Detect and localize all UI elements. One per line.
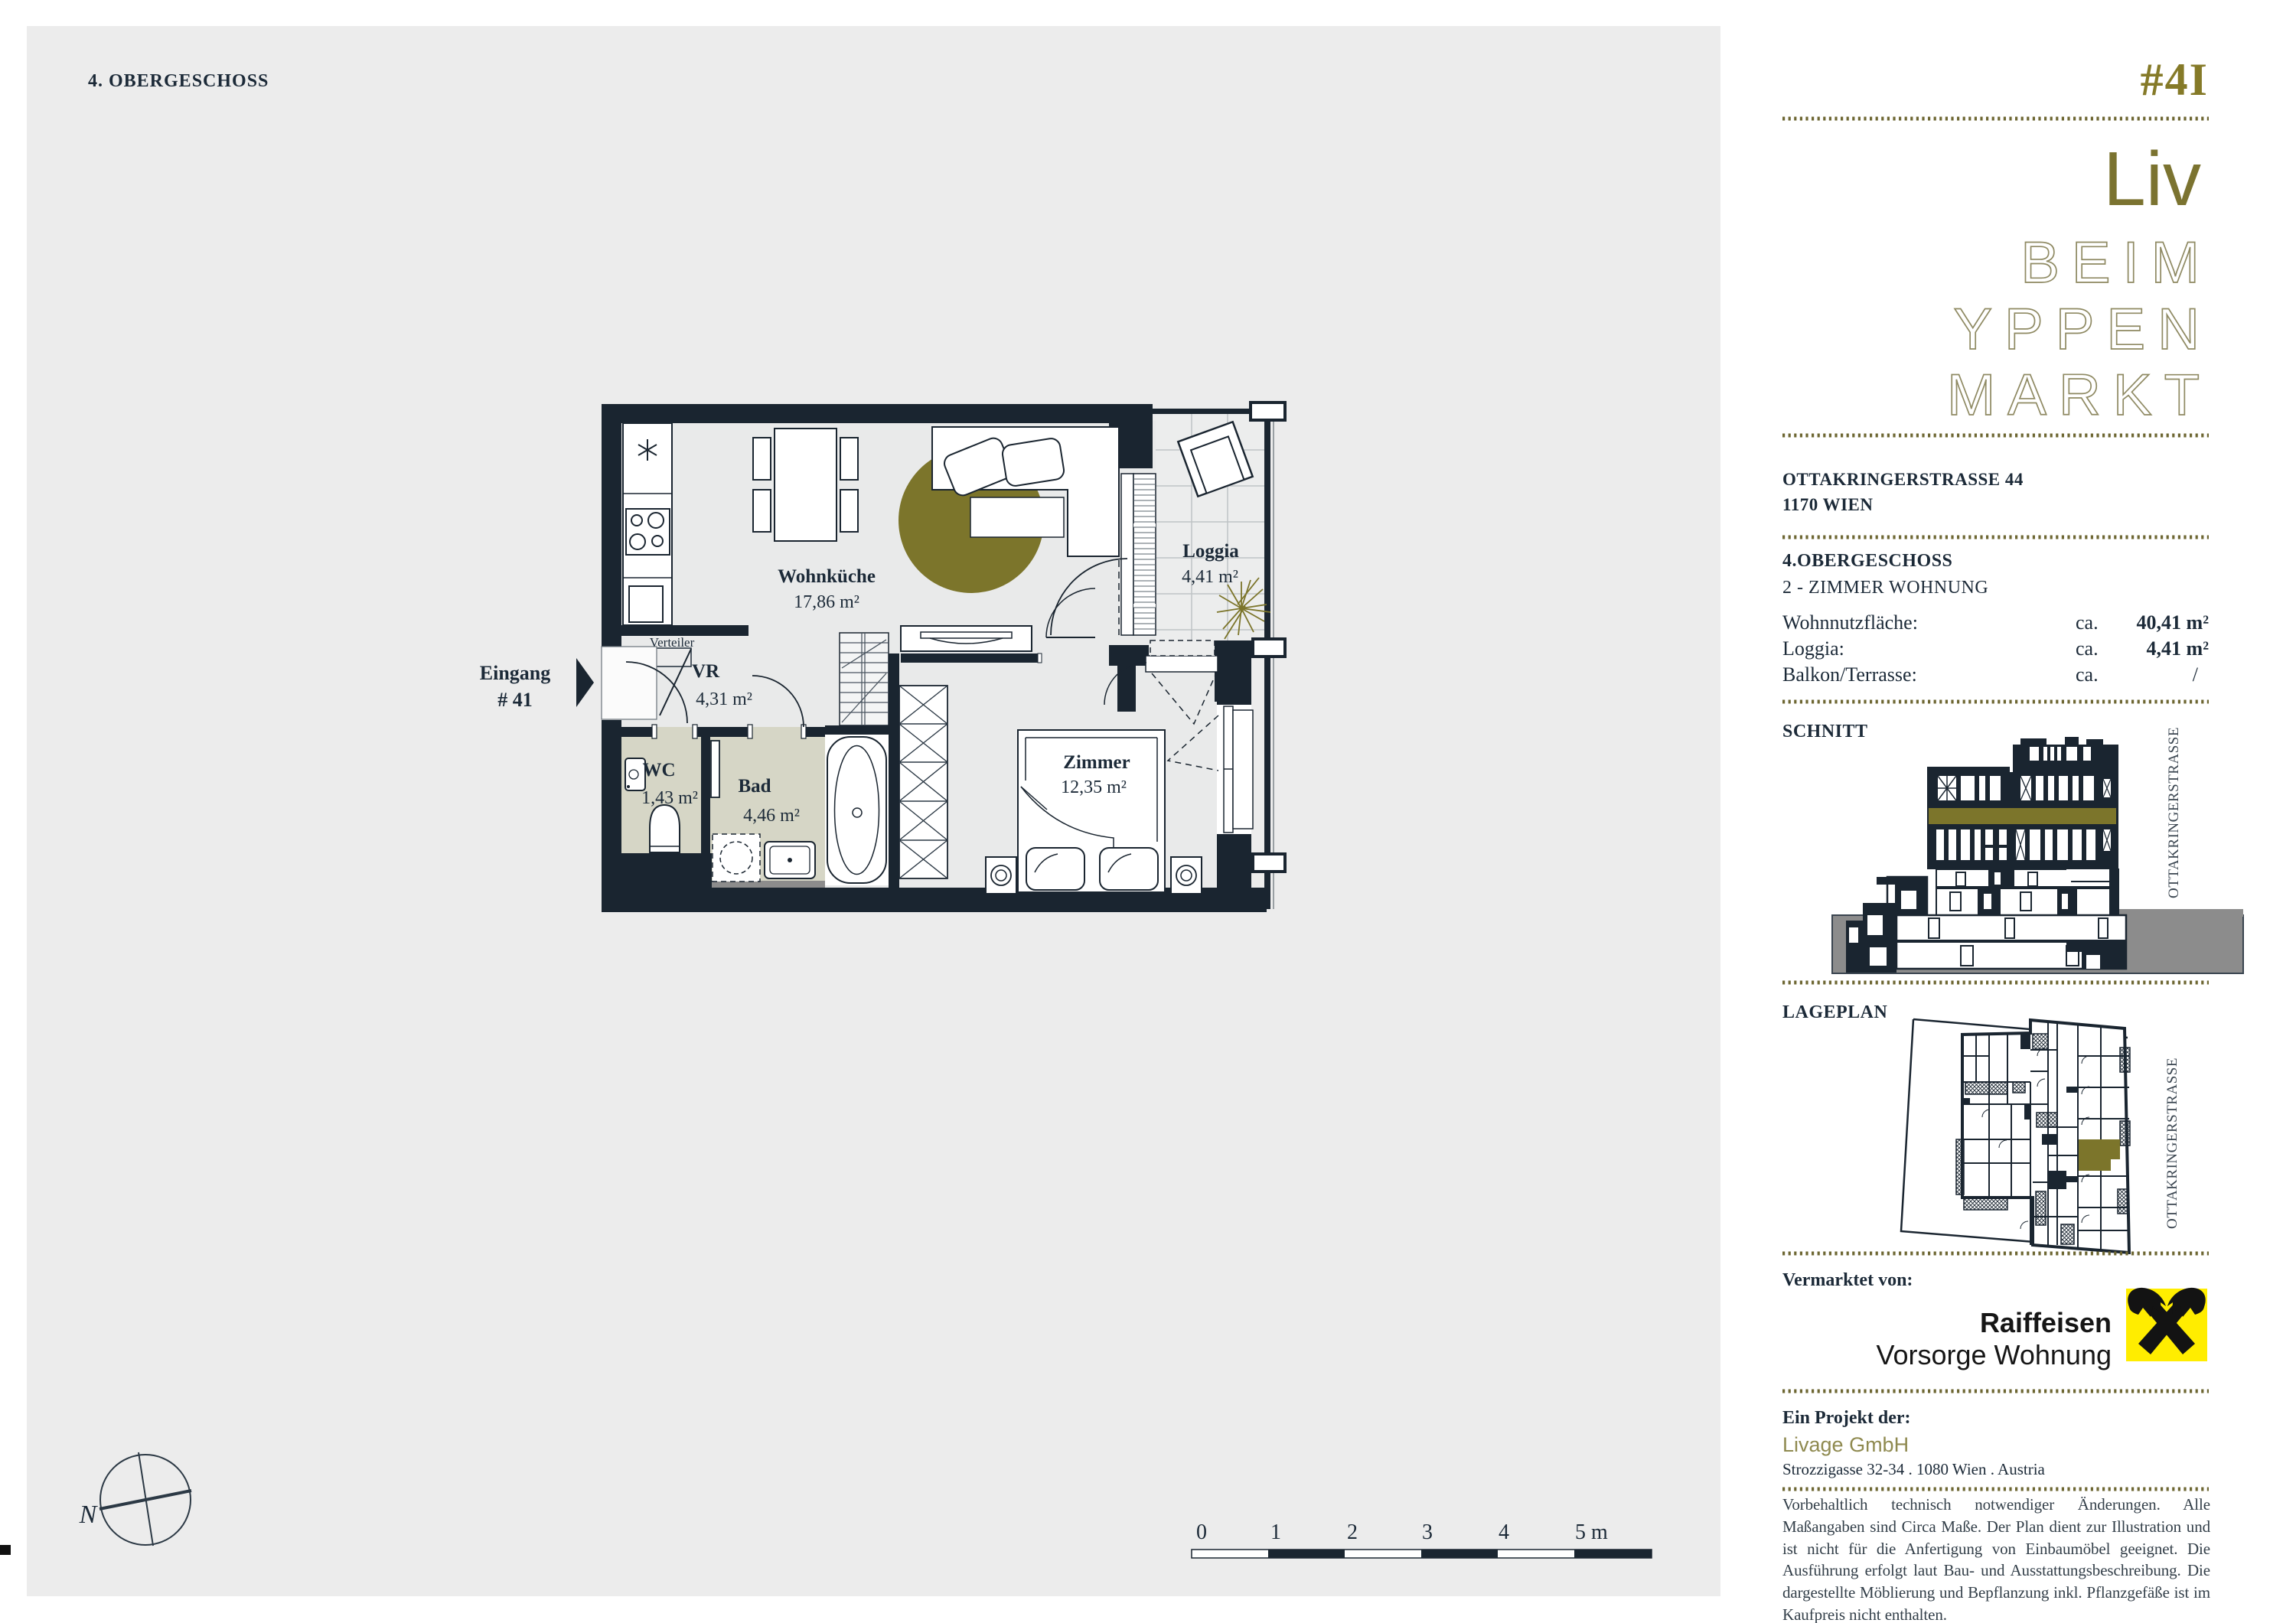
- svg-text:Raiffeisen: Raiffeisen: [1980, 1307, 2112, 1338]
- svg-text:/: /: [2193, 663, 2199, 686]
- svg-text:1: 1: [1270, 1520, 1281, 1544]
- svg-text:2: 2: [1347, 1520, 1358, 1544]
- svg-text:ca.: ca.: [2076, 611, 2099, 634]
- svg-text:1,43 m²: 1,43 m²: [641, 788, 698, 808]
- svg-text:Ein Projekt der:: Ein Projekt der:: [1782, 1408, 1911, 1428]
- svg-text:4.OBERGESCHOSS: 4.OBERGESCHOSS: [1782, 551, 1952, 571]
- svg-text:5 m: 5 m: [1575, 1520, 1608, 1544]
- svg-text:#4I: #4I: [2141, 54, 2209, 105]
- svg-text:1170 WIEN: 1170 WIEN: [1782, 495, 1873, 514]
- svg-text:4,41 m²: 4,41 m²: [1182, 567, 1238, 587]
- svg-text:Verteiler: Verteiler: [650, 635, 695, 650]
- svg-text:ca.: ca.: [2076, 637, 2099, 660]
- svg-text:SCHNITT: SCHNITT: [1782, 722, 1868, 741]
- svg-text:Strozzigasse 32-34 . 1080 Wien: Strozzigasse 32-34 . 1080 Wien . Austria: [1782, 1460, 2046, 1478]
- svg-text:17,86 m²: 17,86 m²: [794, 592, 859, 612]
- svg-text:0: 0: [1196, 1520, 1207, 1544]
- svg-text:# 41: # 41: [497, 689, 533, 711]
- svg-text:OTTAKRINGERSTRASSE: OTTAKRINGERSTRASSE: [2166, 727, 2182, 898]
- svg-text:Balkon/Terrasse:: Balkon/Terrasse:: [1782, 663, 1917, 686]
- svg-text:Wohnküche: Wohnküche: [778, 566, 876, 587]
- svg-text:Zimmer: Zimmer: [1063, 752, 1130, 773]
- svg-text:4: 4: [1499, 1520, 1509, 1544]
- svg-text:Loggia:: Loggia:: [1782, 637, 1844, 660]
- svg-text:Liv: Liv: [2103, 136, 2201, 222]
- svg-text:Livage GmbH: Livage GmbH: [1782, 1433, 1909, 1456]
- svg-text:WC: WC: [642, 760, 675, 781]
- svg-text:40,41 m²: 40,41 m²: [2137, 611, 2210, 634]
- svg-text:12,35 m²: 12,35 m²: [1061, 777, 1127, 797]
- svg-text:3: 3: [1422, 1520, 1433, 1544]
- svg-text:4. OBERGESCHOSS: 4. OBERGESCHOSS: [88, 71, 269, 91]
- svg-text:OTTAKRINGERSTRASSE: OTTAKRINGERSTRASSE: [2164, 1058, 2180, 1229]
- svg-text:ca.: ca.: [2076, 663, 2099, 686]
- svg-text:Eingang: Eingang: [480, 662, 551, 684]
- svg-text:Vorsorge Wohnung: Vorsorge Wohnung: [1876, 1339, 2112, 1370]
- svg-text:Vermarktet von:: Vermarktet von:: [1782, 1270, 1913, 1290]
- svg-text:4,46 m²: 4,46 m²: [743, 806, 800, 826]
- svg-text:Loggia: Loggia: [1182, 541, 1239, 562]
- svg-text:4,41 m²: 4,41 m²: [2147, 637, 2210, 660]
- svg-text:N: N: [79, 1501, 99, 1529]
- svg-text:LAGEPLAN: LAGEPLAN: [1782, 1002, 1888, 1022]
- svg-text:4,31 m²: 4,31 m²: [696, 689, 752, 709]
- svg-text:VR: VR: [692, 661, 720, 682]
- svg-text:Bad: Bad: [738, 776, 771, 797]
- svg-text:OTTAKRINGERSTRASSE 44: OTTAKRINGERSTRASSE 44: [1782, 470, 2024, 489]
- svg-text:2 - ZIMMER WOHNUNG: 2 - ZIMMER WOHNUNG: [1782, 578, 1988, 598]
- svg-text:Wohnnutzfläche:: Wohnnutzfläche:: [1782, 611, 1918, 634]
- svg-text:BEIM: BEIM: [2020, 230, 2212, 295]
- svg-text:MARKT: MARKT: [1947, 363, 2212, 428]
- svg-text:YPPEN: YPPEN: [1953, 297, 2212, 362]
